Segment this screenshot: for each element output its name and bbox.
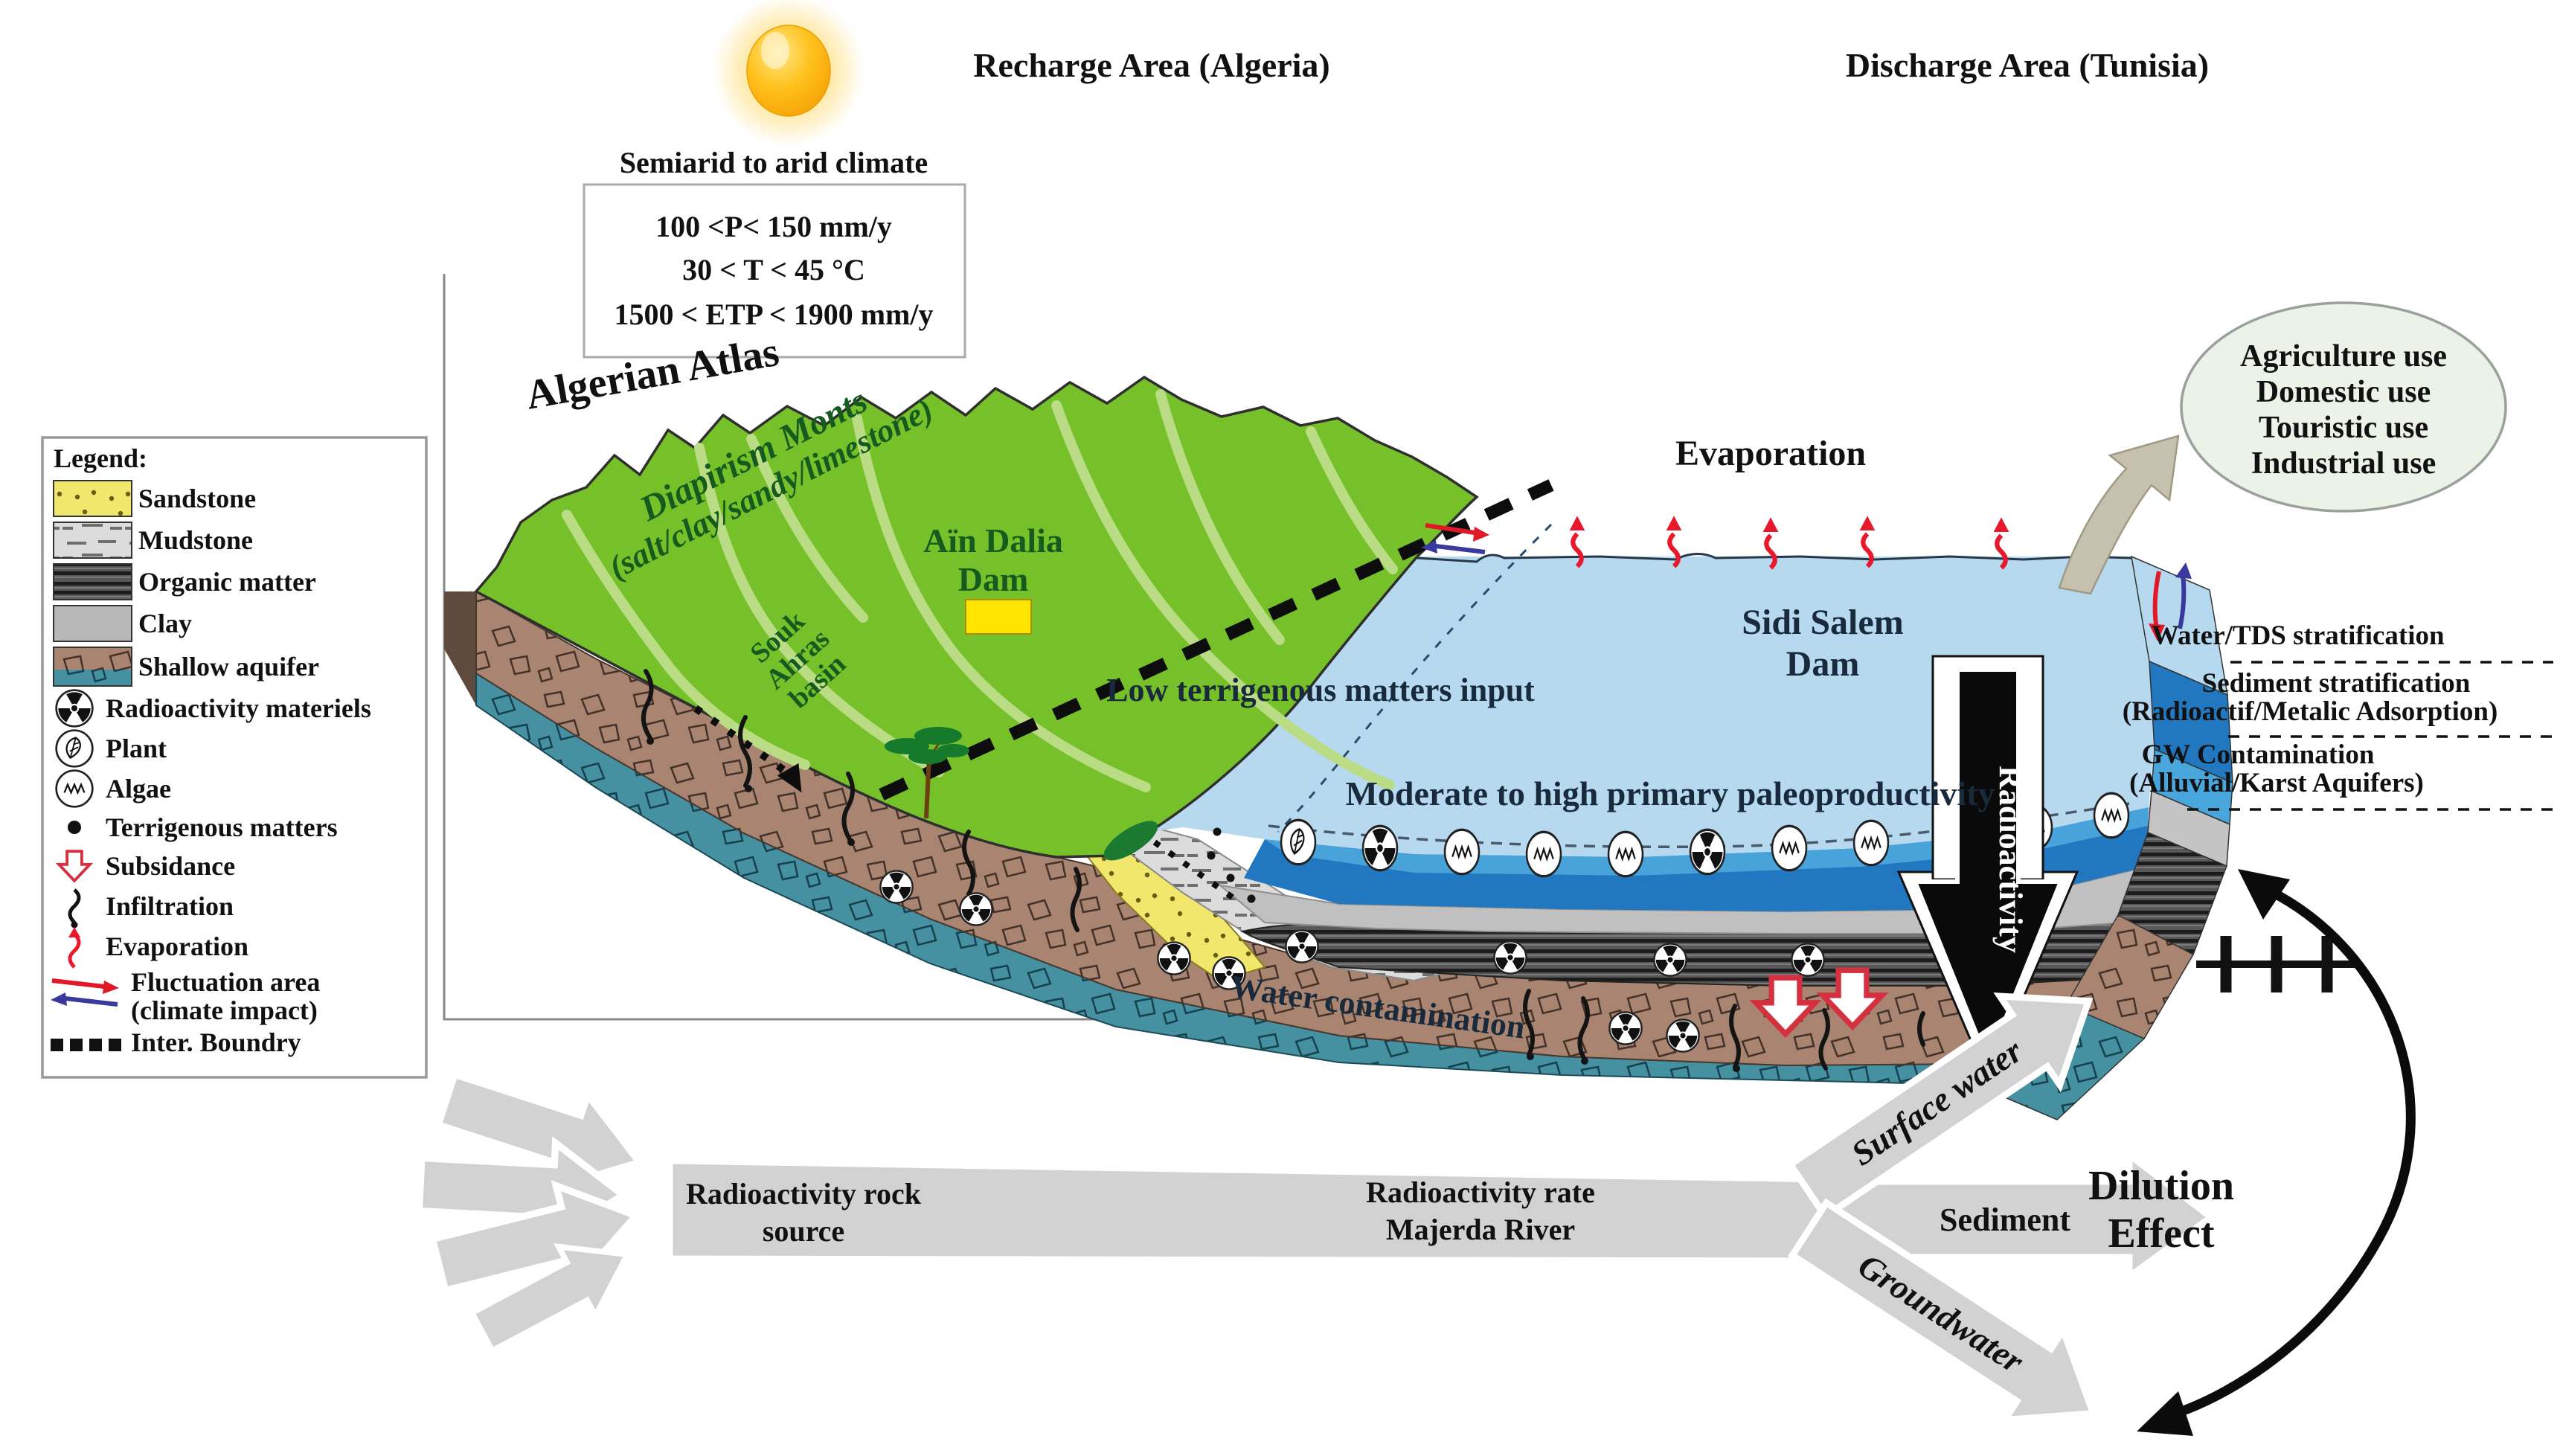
rate-label-2: Majerda River (1386, 1213, 1575, 1246)
discharge-area-title: Discharge Area (Tunisia) (1846, 46, 2209, 84)
dilution-label-1: Dilution (2088, 1163, 2234, 1209)
legend-box: Legend: Sandstone Mudstone Organic matte… (42, 437, 426, 1077)
sidi-salem-label: Sidi Salem (1742, 603, 1903, 642)
sediment-label: Sediment (1940, 1202, 2070, 1238)
ain-dalia-dam-label: Dam (958, 560, 1029, 598)
left-cut-face (444, 591, 476, 705)
legend-label-boundary: Inter. Boundry (131, 1027, 301, 1057)
sidi-salem-dam-label: Dam (1786, 644, 1860, 684)
dilution-label-2: Effect (2108, 1210, 2214, 1257)
radioactivity-arrow-label: Radioactivity (1992, 766, 2029, 953)
legend-label-organic: Organic matter (138, 567, 316, 597)
paleoproductivity-label: Moderate to high primary paleoproductivi… (1345, 774, 1995, 812)
organic-matter-swatch (54, 564, 132, 600)
water-tds-label: Water/TDS stratification (2152, 620, 2445, 651)
climate-line-precipitation: 100 <P< 150 mm/y (655, 210, 892, 243)
legend-label-clay: Clay (138, 609, 192, 638)
legend-sublabel-fluctuation: (climate impact) (131, 995, 318, 1025)
climate-title: Semiarid to arid climate (620, 146, 928, 179)
legend-label-algae: Algae (106, 774, 171, 804)
sediment-strat-sublabel: (Radioactif/Metalic Adsorption) (2123, 696, 2498, 727)
plant-icon (57, 731, 93, 767)
use-domestic: Domestic use (2256, 375, 2431, 409)
evaporation-label: Evaporation (1675, 434, 1866, 473)
legend-label-evaporation: Evaporation (106, 931, 248, 961)
legend-label-mudstone: Mudstone (138, 525, 253, 555)
use-touristic: Touristic use (2259, 411, 2428, 445)
sediment-strat-label: Sediment stratification (2202, 668, 2471, 699)
diagram-svg: Recharge Area (Algeria) Discharge Area (… (0, 0, 2560, 1456)
recharge-area-title: Recharge Area (Algeria) (973, 46, 1329, 84)
rock-source-label-1: Radioactivity rock (686, 1177, 922, 1210)
ain-dalia-label: Aïn Dalia (923, 522, 1063, 559)
shallow-aquifer-swatch (54, 647, 132, 686)
use-agriculture: Agriculture use (2240, 339, 2447, 373)
legend-label-radioactivity: Radioactivity materiels (106, 693, 371, 723)
radioactivity-icon (57, 690, 93, 727)
low-terrigenous-label: Low terrigenous matters input (1106, 672, 1535, 708)
rate-label-1: Radioactivity rate (1366, 1176, 1595, 1209)
ain-dalia-dam-marker (966, 600, 1031, 634)
legend-label-terrigenous: Terrigenous matters (106, 812, 338, 842)
legend-label-infiltration: Infiltration (106, 891, 234, 921)
legend-label-subsidance: Subsidance (106, 851, 235, 881)
gw-contamination-sublabel: (Alluvial/Karst Aquifers) (2129, 768, 2424, 798)
sun-icon (713, 0, 864, 147)
climate-line-temperature: 30 < T < 45 °C (682, 253, 865, 286)
mudstone-swatch (54, 522, 132, 558)
algae-icon (57, 771, 93, 807)
plus-scale-icon (2196, 936, 2357, 992)
legend-label-sandstone: Sandstone (138, 484, 256, 513)
climate-line-etp: 1500 < ETP < 1900 mm/y (615, 298, 934, 331)
legend-title: Legend: (54, 443, 147, 473)
legend-label-aquifer: Shallow aquifer (138, 652, 319, 682)
stratification-panel: Water/TDS stratification Sediment strati… (2123, 620, 2553, 809)
gw-contamination-label: GW Contamination (2142, 740, 2375, 770)
legend-label-fluctuation: Fluctuation area (131, 967, 320, 997)
rock-source-label-2: source (763, 1214, 844, 1248)
geology-diagram-canvas: Recharge Area (Algeria) Discharge Area (… (0, 0, 2560, 1456)
legend-label-plant: Plant (106, 734, 167, 763)
terrigenous-dot-icon (68, 821, 81, 834)
use-industrial: Industrial use (2251, 446, 2437, 481)
clay-swatch (54, 606, 132, 641)
sandstone-swatch (54, 481, 132, 516)
